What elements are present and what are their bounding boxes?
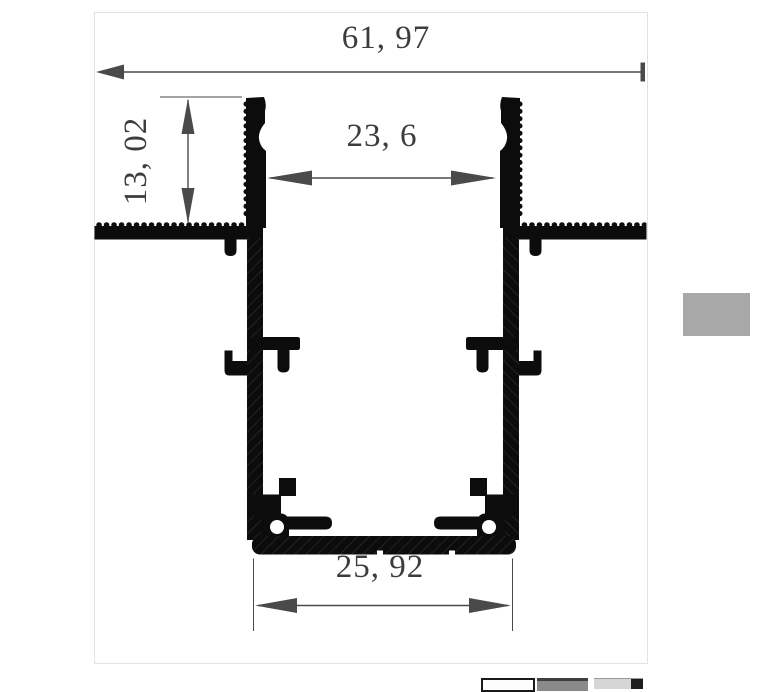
base-width-value: 25, 92: [270, 551, 490, 584]
overall-width-value: 61, 97: [276, 22, 496, 55]
thumbnail-3-image: [631, 679, 643, 689]
thumbnail-2[interactable]: [537, 678, 588, 691]
inner-width-value: 23, 6: [272, 120, 492, 153]
gray-panel: [683, 293, 750, 336]
thumbnail-3[interactable]: [594, 678, 643, 689]
recess-depth-value: 13, 02: [120, 81, 162, 241]
thumbnail-1[interactable]: [481, 678, 535, 692]
